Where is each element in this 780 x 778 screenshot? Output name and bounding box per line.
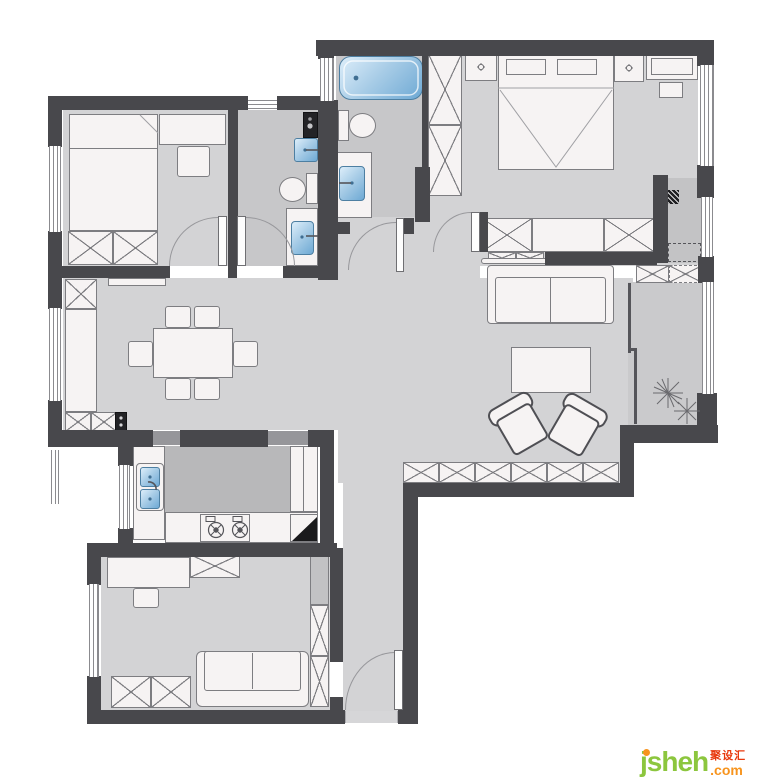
nightstand xyxy=(465,54,497,81)
door-threshold xyxy=(153,431,180,445)
wall-segment xyxy=(48,430,153,447)
window xyxy=(49,146,61,232)
door-leaf xyxy=(396,218,404,272)
window xyxy=(701,197,713,257)
sliding-door-panel xyxy=(628,283,631,353)
sliding-door-panel xyxy=(634,350,637,424)
entry-door-leaf xyxy=(394,650,403,710)
sink-basin xyxy=(140,489,160,509)
wall-segment xyxy=(316,40,714,56)
wall-segment xyxy=(697,393,717,443)
wall-segment xyxy=(320,430,334,548)
sink-basin xyxy=(140,467,160,487)
dining-chair xyxy=(165,378,191,400)
sliding-door-step xyxy=(628,348,637,351)
tv-cabinet xyxy=(403,462,439,483)
window xyxy=(248,97,277,109)
dining-chair xyxy=(128,341,153,367)
sideboard-cabinet xyxy=(65,412,91,432)
wall-segment xyxy=(422,56,428,168)
planned-cabinet-dashed xyxy=(668,243,701,262)
wall-segment xyxy=(118,447,133,466)
wall-segment xyxy=(545,252,657,265)
toilet-tank xyxy=(306,173,318,204)
door-leaf xyxy=(237,216,246,266)
wall-segment xyxy=(48,231,62,309)
single-bed xyxy=(69,114,158,231)
bed-pillow-line xyxy=(70,148,157,149)
brand-text: jsheh xyxy=(640,746,708,777)
wall-segment xyxy=(620,425,634,497)
wardrobe-middle xyxy=(532,218,604,252)
toilet-bowl xyxy=(279,177,306,202)
shoe-cabinet xyxy=(636,265,669,283)
brand-cjk-text: 聚设汇 xyxy=(710,751,746,762)
tv-cabinet xyxy=(583,462,619,483)
wall-segment xyxy=(118,528,133,547)
desk-chair xyxy=(177,146,210,177)
wall-segment xyxy=(415,167,430,222)
wall-segment xyxy=(48,400,62,447)
wall-segment xyxy=(403,483,634,497)
wardrobe xyxy=(113,231,158,265)
coffee-table xyxy=(511,347,591,393)
wall-segment xyxy=(87,676,101,724)
sofa-seat-divider xyxy=(252,653,253,689)
toilet-bowl xyxy=(349,113,376,138)
tv-cabinet xyxy=(475,462,511,483)
wall-segment xyxy=(697,165,714,198)
wall-segment xyxy=(87,543,101,585)
wardrobe xyxy=(190,554,240,578)
low-cabinet xyxy=(151,676,191,708)
floor-balcony xyxy=(628,282,702,425)
window xyxy=(51,450,59,504)
sideboard xyxy=(65,309,97,412)
brand-suffix-text: .com xyxy=(710,763,746,777)
tv-cabinet xyxy=(547,462,583,483)
pillow xyxy=(557,59,597,75)
wardrobe xyxy=(428,54,462,125)
dining-table xyxy=(153,328,233,378)
wall-segment xyxy=(698,256,714,283)
window xyxy=(702,282,714,394)
refrigerator-corner xyxy=(290,514,318,542)
desk-chair xyxy=(133,588,159,608)
wall-segment xyxy=(48,96,62,147)
window xyxy=(320,58,334,101)
window xyxy=(119,465,130,529)
gas-stove xyxy=(200,514,250,542)
brand-text-wrap: jsheh xyxy=(640,747,708,777)
dining-chair xyxy=(194,306,220,328)
desk xyxy=(159,114,226,145)
entry-threshold xyxy=(345,711,398,723)
window xyxy=(700,65,714,166)
sofa-seat-divider xyxy=(550,278,551,322)
wall-segment xyxy=(697,40,714,66)
wardrobe xyxy=(428,125,462,196)
wall-segment xyxy=(228,266,237,278)
toilet-tank xyxy=(338,110,349,141)
dining-chair xyxy=(165,306,191,328)
wall-segment xyxy=(338,222,350,234)
wall-segment xyxy=(330,697,343,724)
dining-chair xyxy=(194,378,220,400)
wardrobe xyxy=(68,231,113,265)
wall-segment xyxy=(318,40,334,59)
dresser-inner xyxy=(651,58,693,75)
watermark-logo: jsheh 聚设汇 .com xyxy=(640,737,778,777)
tall-cabinet xyxy=(310,605,329,656)
tv-cabinet xyxy=(511,462,547,483)
washbasin xyxy=(291,221,314,255)
wall-segment xyxy=(55,266,170,278)
kitchen-counter xyxy=(290,446,318,512)
stool xyxy=(659,82,683,98)
wardrobe xyxy=(604,218,654,252)
wall-segment xyxy=(403,483,418,724)
bathtub xyxy=(339,56,423,100)
wardrobe xyxy=(482,218,532,252)
wall-segment xyxy=(480,212,488,252)
floor-plan: jsheh 聚设汇 .com xyxy=(0,0,780,778)
door-leaf xyxy=(471,212,480,252)
wall-segment xyxy=(180,430,268,447)
low-cabinet xyxy=(111,676,151,708)
dining-chair xyxy=(233,341,258,367)
kitchen-floor-center xyxy=(165,446,290,512)
shoe-cabinet xyxy=(108,278,166,286)
window xyxy=(89,584,99,677)
wall-segment xyxy=(330,548,343,662)
wall-segment xyxy=(87,710,345,724)
sideboard-cabinet xyxy=(91,412,117,432)
tv-cabinet xyxy=(439,462,475,483)
sideboard-cabinet xyxy=(65,279,97,309)
brand-side: 聚设汇 .com xyxy=(710,751,746,777)
desk xyxy=(107,557,190,588)
door-threshold xyxy=(268,431,308,445)
wall-segment xyxy=(653,175,668,263)
window xyxy=(49,308,61,401)
nightstand xyxy=(614,54,644,82)
wall-segment xyxy=(48,96,248,110)
washbasin xyxy=(339,166,365,201)
tall-cabinet-top xyxy=(310,556,329,605)
washbasin xyxy=(294,138,318,162)
counter-divider xyxy=(303,447,304,511)
water-dispenser xyxy=(115,412,127,432)
wall-segment xyxy=(318,100,338,280)
tall-cabinet xyxy=(310,656,329,707)
brand-dot-icon xyxy=(643,749,650,756)
pillow xyxy=(506,59,546,75)
washing-machine xyxy=(303,112,318,138)
door-leaf xyxy=(218,216,227,266)
